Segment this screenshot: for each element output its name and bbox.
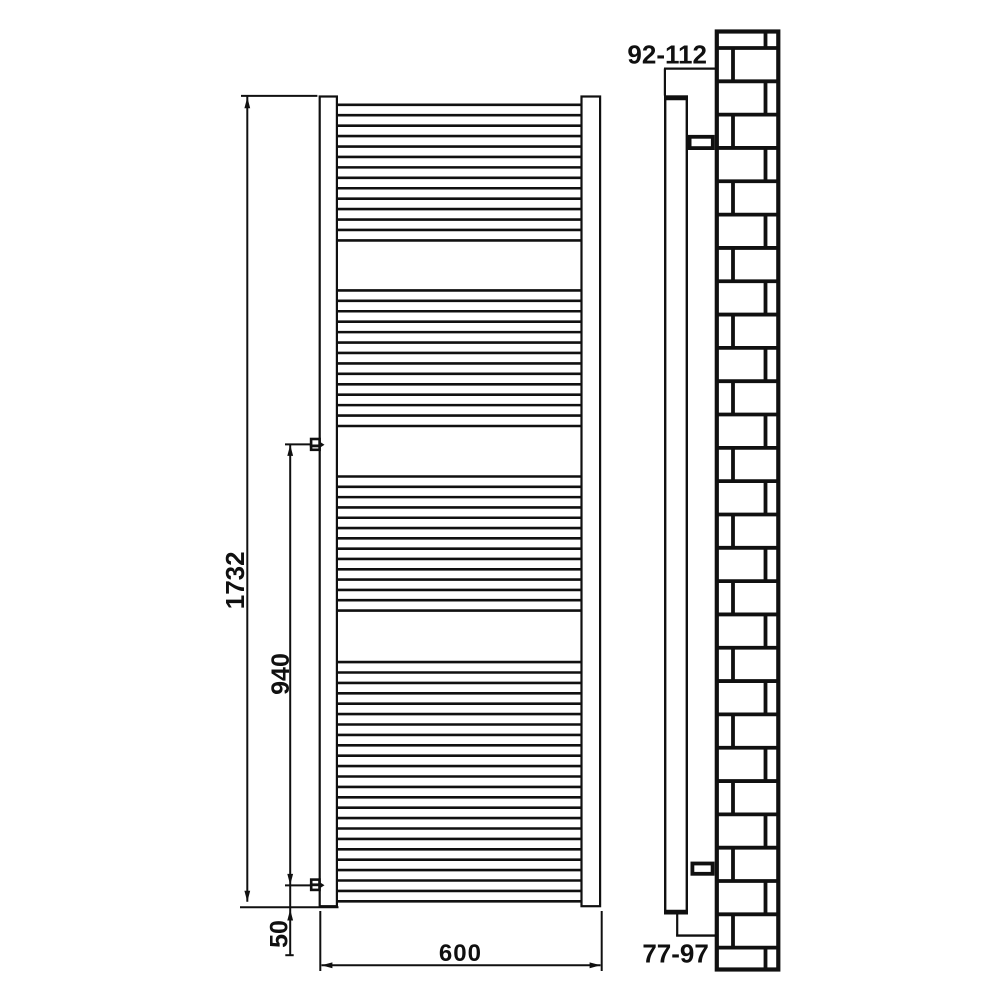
svg-text:50: 50 xyxy=(265,920,293,948)
svg-text:600: 600 xyxy=(439,940,482,967)
svg-text:1732: 1732 xyxy=(220,551,250,609)
svg-text:940: 940 xyxy=(267,653,295,695)
svg-text:92-112: 92-112 xyxy=(627,39,707,69)
svg-text:77-97: 77-97 xyxy=(642,938,709,968)
